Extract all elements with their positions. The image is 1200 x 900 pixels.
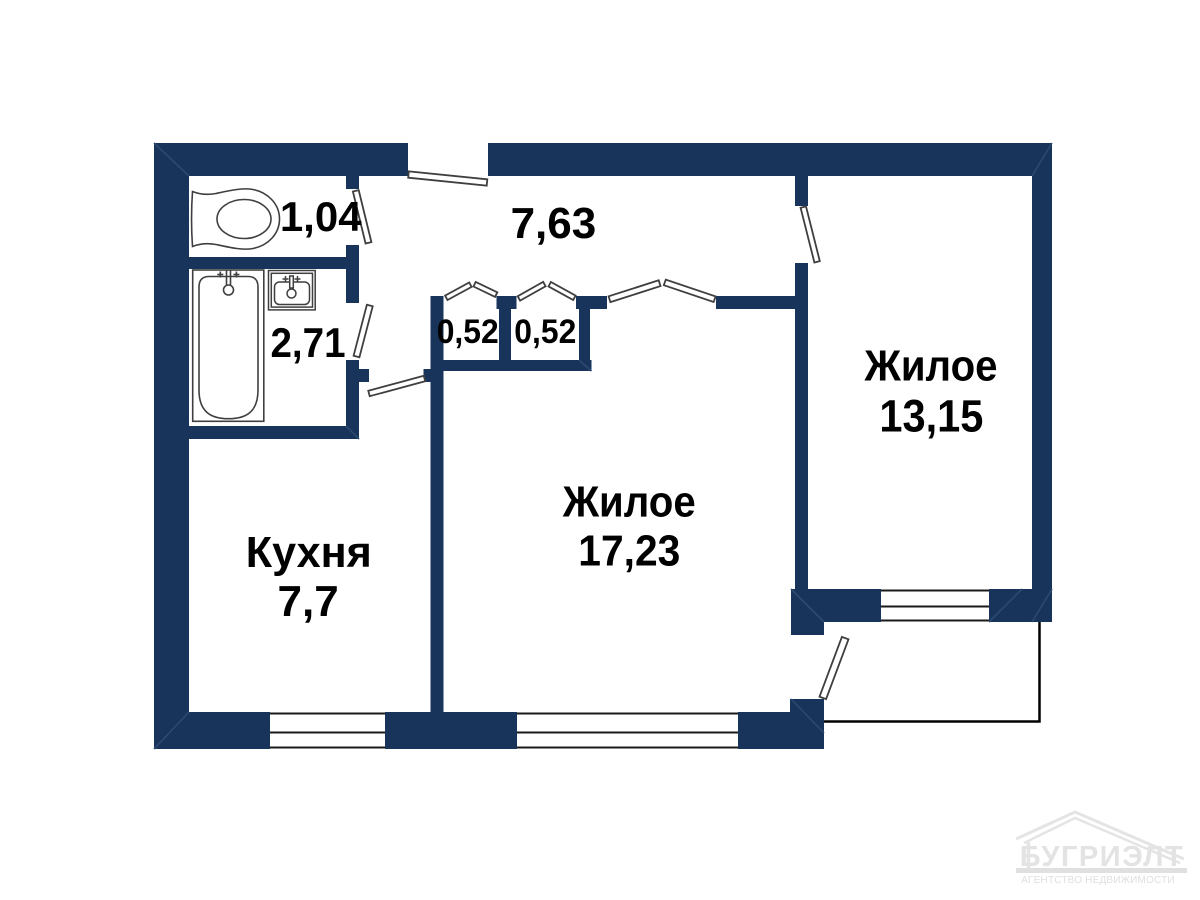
svg-text:Кухня: Кухня	[246, 528, 372, 577]
svg-text:АГЕНТСТВО НЕДВИЖИМОСТИ: АГЕНТСТВО НЕДВИЖИМОСТИ	[1021, 875, 1175, 886]
svg-text:7,63: 7,63	[511, 199, 597, 248]
svg-text:Жилое: Жилое	[864, 342, 998, 391]
svg-text:Жилое: Жилое	[562, 478, 696, 527]
svg-text:2,71: 2,71	[271, 319, 346, 366]
svg-text:0,52: 0,52	[514, 313, 576, 351]
svg-text:17,23: 17,23	[578, 527, 680, 576]
svg-text:0,52: 0,52	[437, 313, 499, 351]
svg-text:13,15: 13,15	[879, 391, 983, 442]
svg-text:1,04: 1,04	[280, 193, 362, 240]
svg-text:7,7: 7,7	[278, 577, 339, 626]
